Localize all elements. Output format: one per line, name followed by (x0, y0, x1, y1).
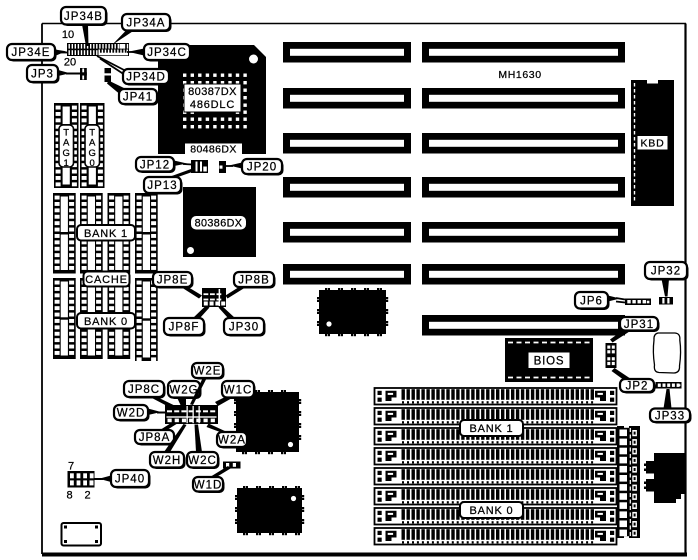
svg-text:BANK 1: BANK 1 (84, 228, 128, 240)
svg-text:W2G: W2G (169, 384, 198, 396)
svg-text:CACHE: CACHE (85, 274, 128, 286)
svg-text:JP8B: JP8B (238, 275, 270, 287)
svg-text:JP34C: JP34C (147, 47, 187, 59)
svg-text:2: 2 (84, 490, 90, 502)
svg-text:JP34B: JP34B (64, 11, 103, 23)
svg-text:W2A: W2A (218, 435, 246, 447)
svg-text:JP13: JP13 (147, 180, 177, 192)
svg-text:JP40: JP40 (115, 474, 145, 486)
svg-text:80386DX: 80386DX (195, 218, 243, 230)
svg-text:80486DX: 80486DX (190, 144, 237, 156)
svg-text:JP3: JP3 (31, 69, 54, 81)
svg-text:JP34D: JP34D (126, 72, 166, 84)
svg-text:JP41: JP41 (123, 92, 153, 104)
svg-text:10: 10 (62, 29, 74, 41)
svg-text:BANK 0: BANK 0 (84, 316, 128, 328)
svg-text:JP12: JP12 (140, 159, 170, 171)
svg-text:W2E: W2E (194, 366, 222, 378)
svg-text:BANK 1: BANK 1 (470, 423, 514, 435)
svg-text:1: 1 (64, 158, 69, 169)
svg-text:MH1630: MH1630 (498, 69, 541, 81)
svg-text:JP34E: JP34E (12, 47, 51, 59)
svg-text:JP6: JP6 (580, 295, 603, 307)
svg-text:486DLC: 486DLC (190, 99, 235, 111)
svg-text:JP34A: JP34A (127, 17, 166, 29)
svg-text:JP30: JP30 (229, 322, 259, 334)
svg-text:JP2: JP2 (626, 381, 649, 393)
svg-text:KBD: KBD (641, 138, 665, 150)
svg-text:W2C: W2C (188, 455, 217, 467)
svg-text:JP32: JP32 (651, 266, 681, 278)
svg-text:20: 20 (64, 57, 76, 69)
svg-text:BIOS: BIOS (534, 356, 565, 368)
svg-text:JP31: JP31 (624, 319, 654, 331)
svg-text:0: 0 (90, 158, 95, 169)
svg-text:JP8E: JP8E (157, 275, 189, 287)
svg-text:BANK 0: BANK 0 (470, 505, 514, 517)
svg-text:W1C: W1C (224, 384, 253, 396)
svg-text:8: 8 (66, 490, 72, 502)
svg-text:80387DX: 80387DX (188, 86, 237, 98)
svg-text:7: 7 (68, 461, 74, 473)
svg-text:W2H: W2H (153, 455, 182, 467)
svg-text:JP8A: JP8A (139, 432, 171, 444)
svg-text:W1D: W1D (194, 479, 223, 491)
svg-text:JP33: JP33 (655, 410, 685, 422)
svg-text:W2D: W2D (117, 408, 146, 420)
svg-text:JP8C: JP8C (128, 384, 160, 396)
svg-text:JP8F: JP8F (169, 322, 200, 334)
svg-text:JP20: JP20 (247, 162, 277, 174)
